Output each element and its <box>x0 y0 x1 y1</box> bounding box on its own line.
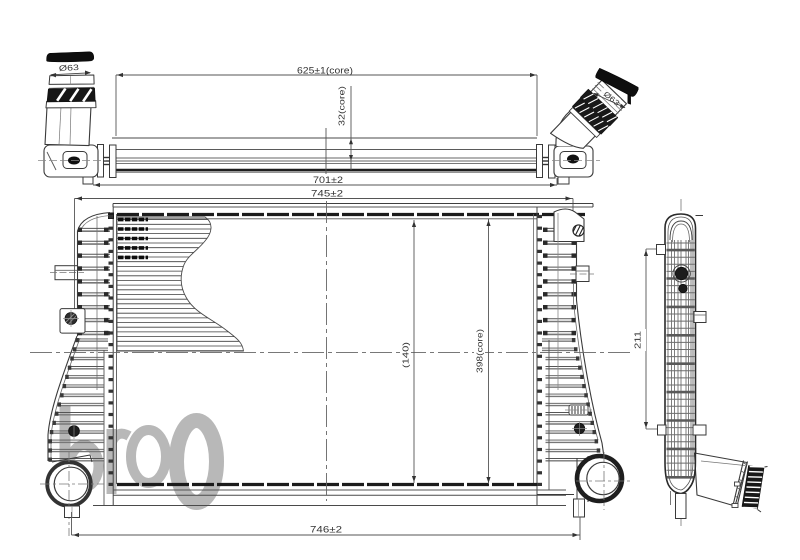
svg-text:211: 211 <box>633 331 643 349</box>
svg-text:Ø63: Ø63 <box>59 63 80 73</box>
svg-text:701±2: 701±2 <box>313 175 343 185</box>
svg-text:746±2: 746±2 <box>310 525 342 535</box>
svg-text:(140): (140) <box>401 342 411 368</box>
svg-text:625±1(core): 625±1(core) <box>297 66 353 76</box>
svg-text:745±2: 745±2 <box>311 189 343 199</box>
svg-text:32(core): 32(core) <box>337 86 347 126</box>
svg-text:398(core): 398(core) <box>475 329 485 373</box>
